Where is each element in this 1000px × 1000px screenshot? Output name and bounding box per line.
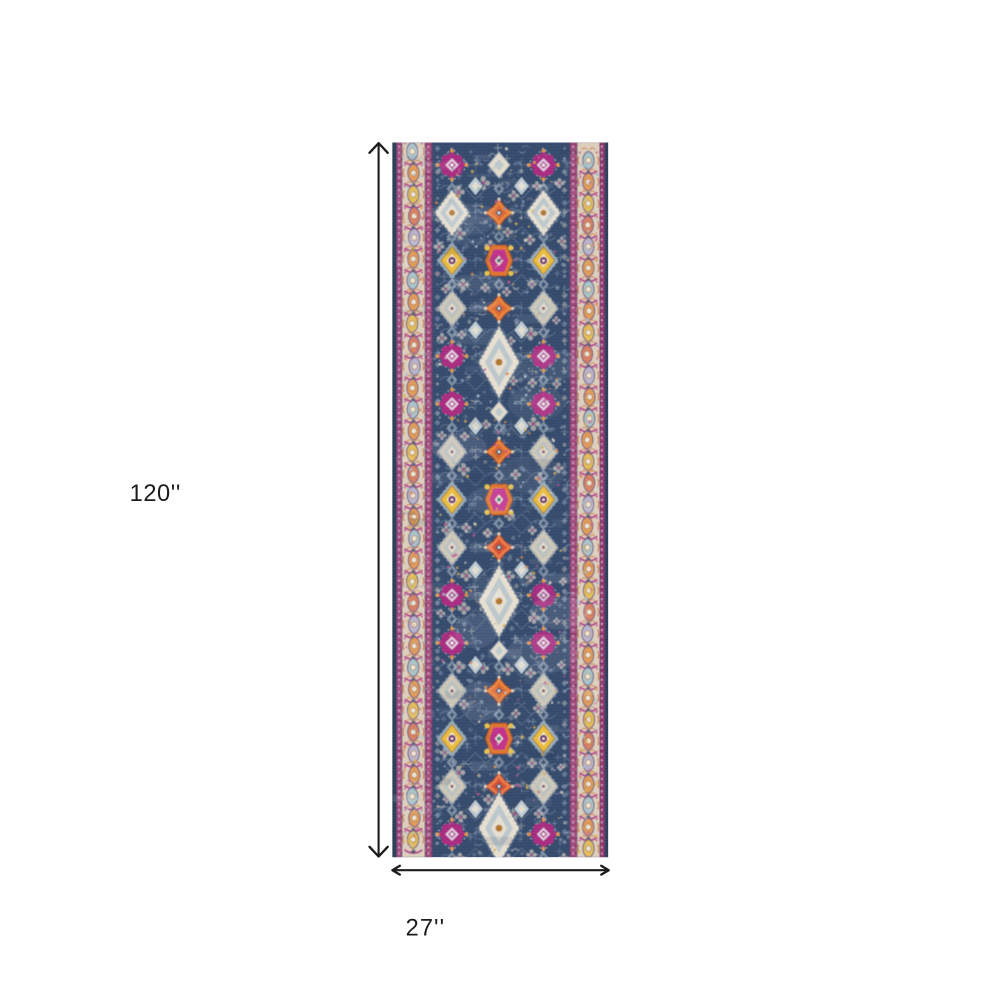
svg-text:120'': 120'': [130, 481, 181, 507]
svg-text:27'': 27'': [406, 916, 446, 942]
